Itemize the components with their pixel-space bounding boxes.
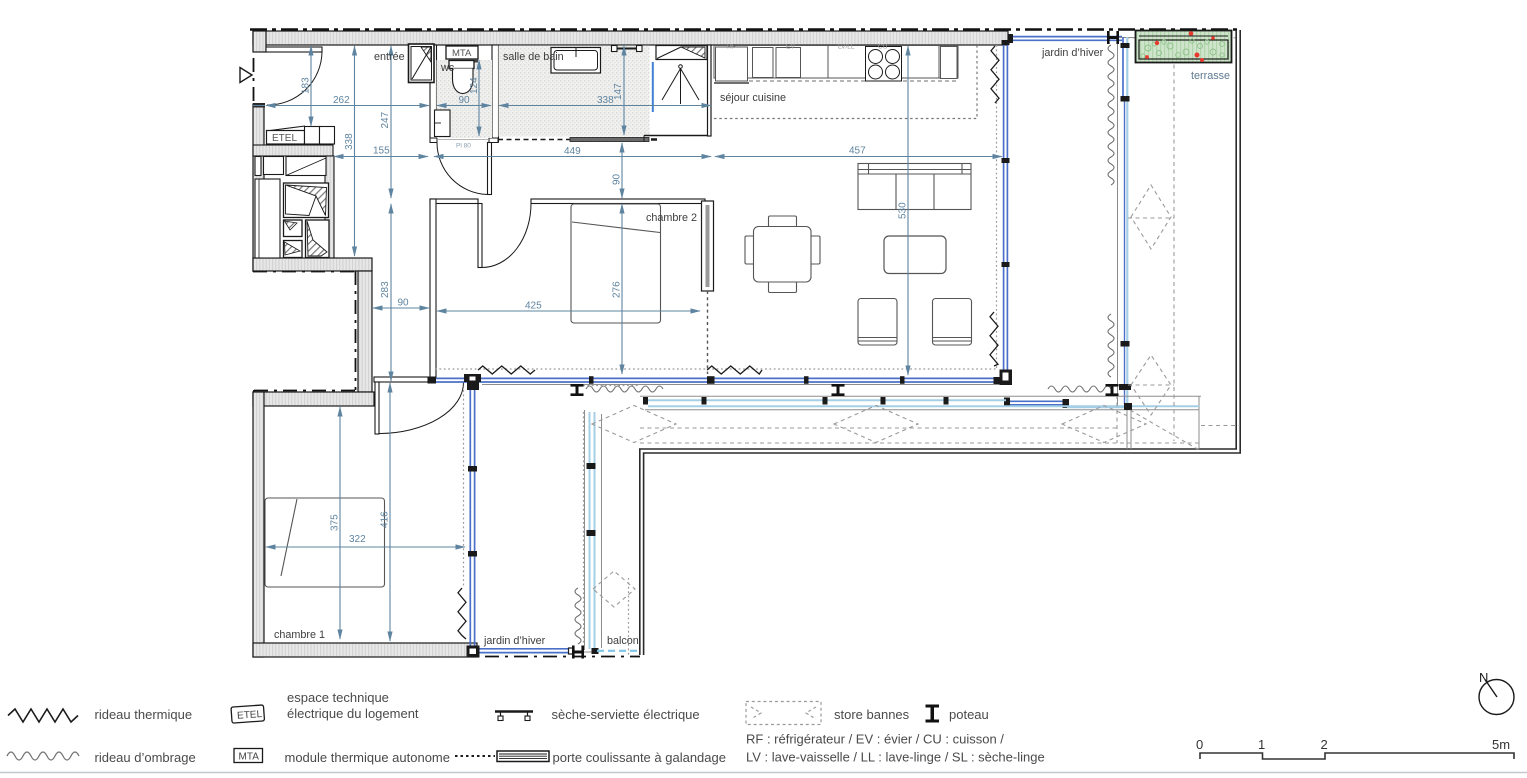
svg-text:90: 90 — [459, 95, 471, 106]
svg-text:poteau: poteau — [949, 707, 989, 722]
svg-text:124: 124 — [469, 77, 480, 94]
svg-text:457: 457 — [849, 146, 866, 157]
svg-text:ETEL: ETEL — [272, 133, 297, 144]
svg-text:EV: EV — [786, 44, 795, 51]
svg-text:terrasse: terrasse — [1191, 70, 1230, 82]
svg-text:5m: 5m — [1492, 737, 1510, 752]
svg-text:module thermique autonome: module thermique autonome — [285, 750, 451, 765]
svg-text:LV/LL: LV/LL — [838, 44, 855, 51]
svg-text:416: 416 — [380, 511, 391, 528]
svg-text:électrique du logement: électrique du logement — [287, 706, 419, 721]
svg-text:jardin d’hiver: jardin d’hiver — [483, 635, 546, 647]
svg-text:183: 183 — [301, 77, 312, 94]
svg-text:wc: wc — [440, 62, 455, 74]
svg-text:RF: RF — [727, 44, 736, 51]
svg-text:276: 276 — [612, 281, 623, 298]
svg-text:chambre 1: chambre 1 — [274, 629, 325, 641]
svg-text:rideau d’ombrage: rideau d’ombrage — [95, 750, 196, 765]
svg-text:RF : réfrigérateur / EV : évie: RF : réfrigérateur / EV : évier / CU : c… — [746, 732, 1004, 747]
svg-text:338: 338 — [597, 95, 614, 106]
svg-text:espace technique: espace technique — [287, 690, 389, 705]
svg-text:porte coulissante à galandage: porte coulissante à galandage — [553, 750, 726, 765]
svg-text:jardin d’hiver: jardin d’hiver — [1041, 47, 1104, 59]
svg-text:salle de bain: salle de bain — [503, 51, 564, 63]
svg-text:sèche-serviette électrique: sèche-serviette électrique — [552, 707, 700, 722]
svg-text:90: 90 — [612, 173, 623, 185]
svg-text:ETEL: ETEL — [237, 709, 263, 722]
svg-text:322: 322 — [349, 534, 366, 545]
svg-text:rideau thermique: rideau thermique — [95, 707, 193, 722]
svg-text:MTA: MTA — [239, 752, 260, 763]
svg-text:530: 530 — [898, 202, 909, 219]
svg-text:90: 90 — [398, 298, 410, 309]
svg-text:entrée: entrée — [374, 51, 405, 63]
svg-text:store bannes: store bannes — [834, 707, 910, 722]
svg-text:155: 155 — [373, 146, 390, 157]
svg-text:N: N — [1479, 670, 1488, 685]
svg-text:375: 375 — [330, 514, 341, 531]
svg-text:247: 247 — [380, 111, 391, 128]
svg-text:338: 338 — [344, 133, 355, 150]
svg-text:147: 147 — [613, 83, 624, 100]
svg-text:283: 283 — [380, 281, 391, 298]
svg-text:2: 2 — [1321, 737, 1328, 752]
svg-text:séjour cuisine: séjour cuisine — [720, 92, 786, 104]
svg-text:425: 425 — [525, 301, 542, 312]
svg-text:1: 1 — [1258, 737, 1265, 752]
svg-text:chambre 2: chambre 2 — [646, 212, 697, 224]
svg-text:262: 262 — [333, 95, 350, 106]
svg-text:0: 0 — [1196, 737, 1203, 752]
svg-text:MTA: MTA — [452, 48, 472, 59]
svg-text:balcon: balcon — [607, 635, 639, 647]
svg-text:449: 449 — [564, 146, 581, 157]
svg-text:Pl 80: Pl 80 — [456, 143, 471, 150]
svg-text:LV : lave-vaisselle / LL : lav: LV : lave-vaisselle / LL : lave-linge / … — [746, 750, 1045, 765]
svg-text:CU: CU — [878, 44, 888, 51]
